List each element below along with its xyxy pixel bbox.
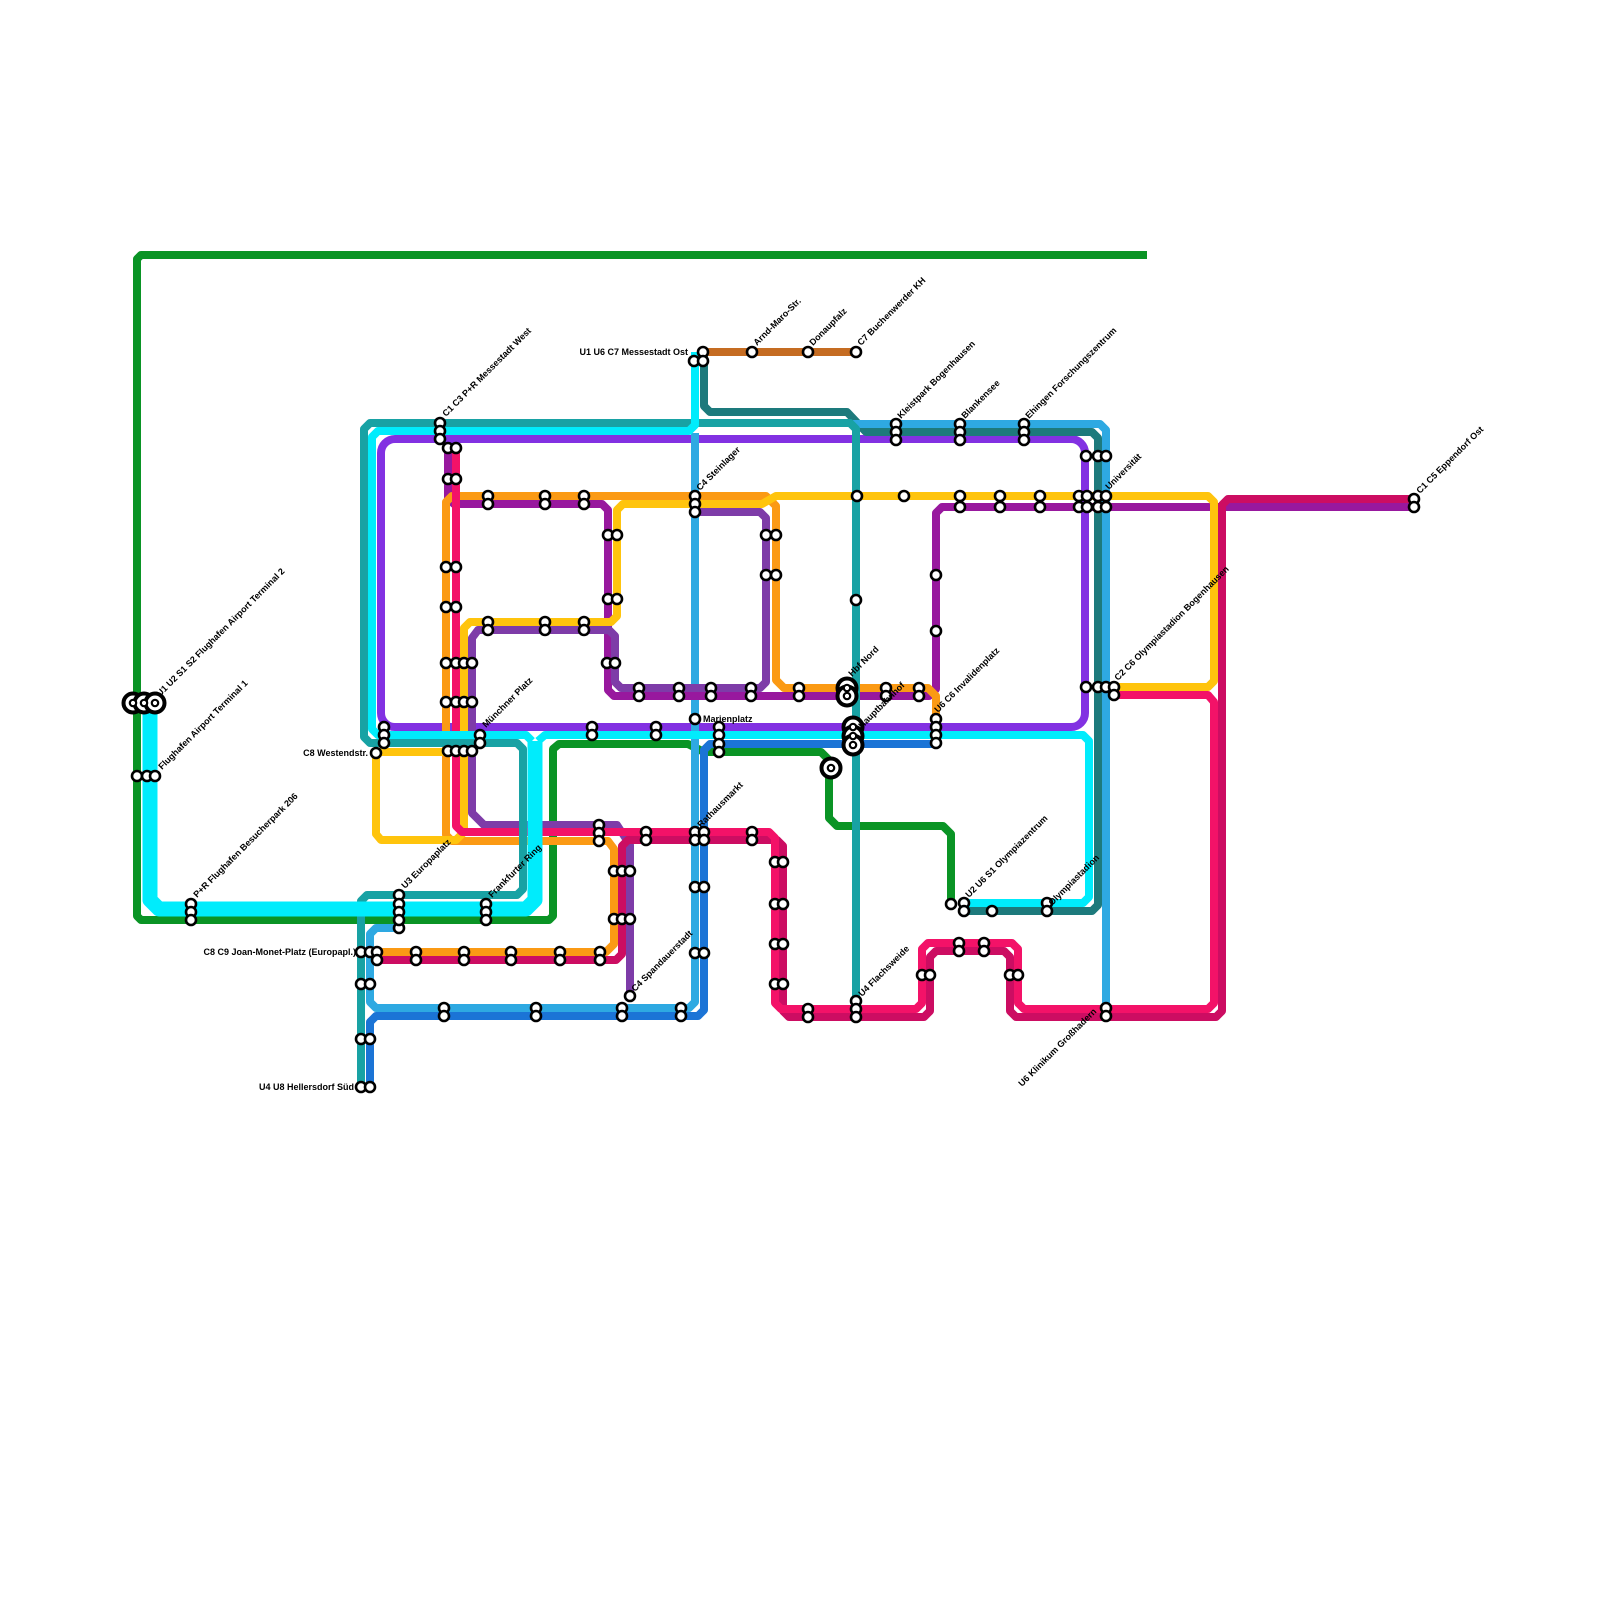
svg-text:U4 U8 Hellersdorf Süd: U4 U8 Hellersdorf Süd: [259, 1082, 354, 1092]
svg-text:C8 C9 Joan-Monet-Platz (Europa: C8 C9 Joan-Monet-Platz (Europapl.): [203, 947, 356, 957]
svg-text:U1 U6 C7 Messestadt Ost: U1 U6 C7 Messestadt Ost: [579, 347, 688, 357]
svg-text:Marienplatz: Marienplatz: [703, 714, 753, 724]
svg-text:C8 Westendstr.: C8 Westendstr.: [303, 748, 368, 758]
